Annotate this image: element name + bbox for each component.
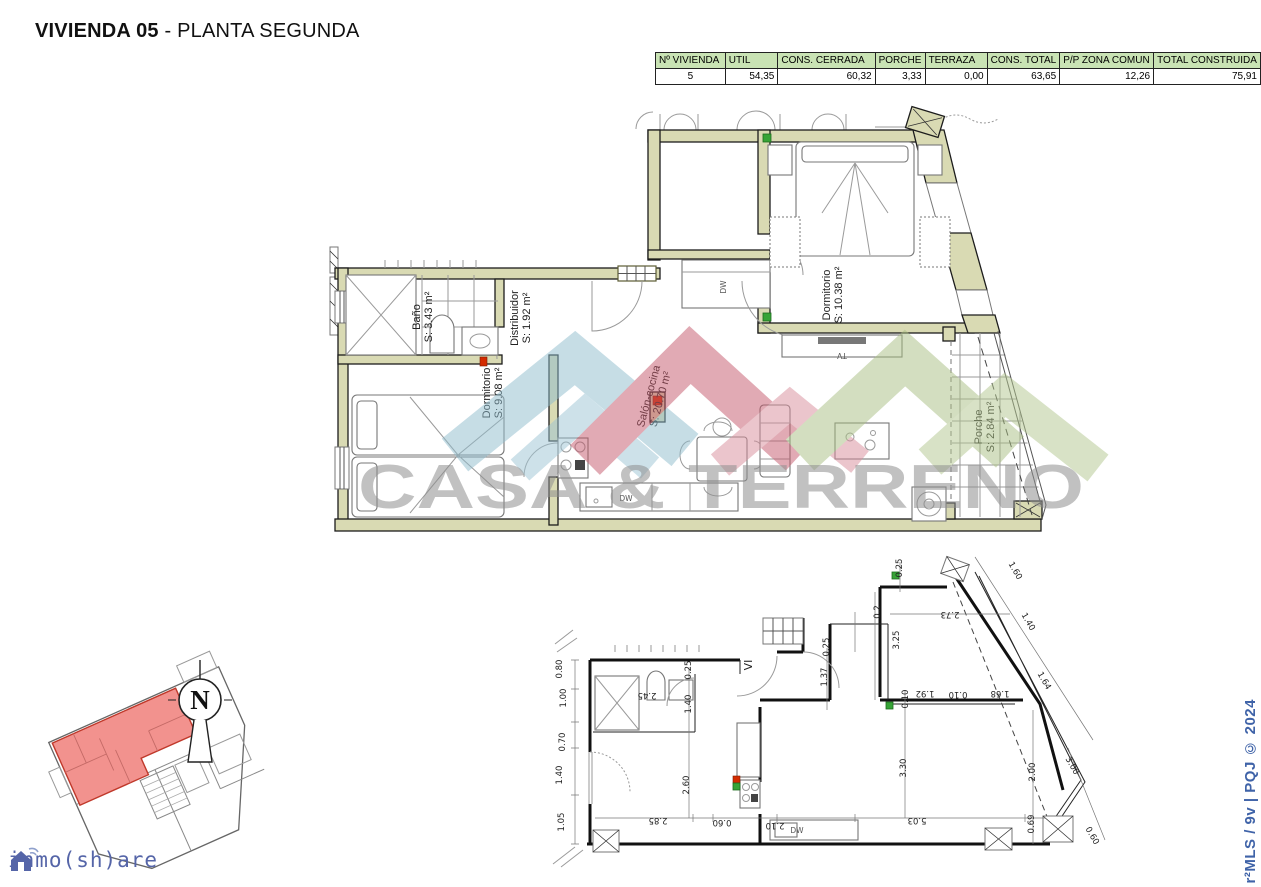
dimension-label: 1.40	[684, 695, 694, 714]
dimension-label: 0.60	[713, 817, 732, 827]
appliance-label-tv: TV	[836, 351, 848, 360]
room-label-porche: PorcheS: 2.84 m²	[973, 401, 997, 452]
cell-value: 75,91	[1154, 69, 1261, 85]
dimension-label: 2.00	[1028, 763, 1038, 782]
cell-value: 12,26	[1060, 69, 1154, 85]
page-title: VIVIENDA 05 - PLANTA SEGUNDA	[35, 20, 360, 43]
dimension-label: 2.85	[649, 815, 668, 825]
cell-value: 5	[656, 69, 726, 85]
page-title-rest: - PLANTA SEGUNDA	[159, 20, 360, 42]
cell-value: 54,35	[725, 69, 778, 85]
cell-value: 3,33	[875, 69, 925, 85]
dimension-label: 0.60	[1083, 825, 1101, 846]
table-header-row: Nº VIVIENDA UTIL CONS. CERRADA PORCHE TE…	[656, 53, 1261, 69]
floorplan-sheet: VIVIENDA 05 - PLANTA SEGUNDA Nº VIVIENDA…	[0, 0, 1261, 887]
fixtures	[595, 572, 899, 840]
col-header: UTIL	[725, 53, 778, 69]
dimension-label: 0.2	[873, 605, 883, 619]
room-label-dormitorio2: DormitorioS: 10.38 m²	[821, 266, 845, 323]
dimension-label: 3.30	[899, 759, 909, 778]
north-label: N	[190, 685, 210, 715]
dimension-label: 1.60	[1006, 560, 1024, 581]
walls-black	[587, 564, 1063, 844]
col-header: CONS. TOTAL	[987, 53, 1060, 69]
col-header: P/P ZONA COMUN	[1060, 53, 1154, 69]
sofa	[760, 405, 790, 477]
meter-grid-box	[618, 266, 656, 281]
col-header: TERRAZA	[925, 53, 987, 69]
dimension-label: 2.60	[682, 776, 692, 795]
dimension-label: 2.45	[638, 690, 657, 700]
dimension-label: 1.05	[557, 813, 567, 832]
col-header: PORCHE	[875, 53, 925, 69]
copyright-vertical-text: r²MLS / 9v | PQJ © 2024	[1242, 699, 1259, 883]
porche-outline	[953, 572, 1085, 834]
porche-area	[951, 331, 1046, 519]
marker-red	[480, 357, 487, 366]
meter-grid-box	[763, 618, 803, 644]
dimension-label: 0.25	[895, 559, 905, 578]
appliance-label-dw: DW	[619, 494, 633, 503]
dimension-label: 0.10	[949, 689, 968, 699]
room-label-dormitorio1: DormitorioS: 9.08 m²	[481, 367, 505, 418]
wall-ticks	[385, 260, 476, 268]
room-label-distribuidor: DistribuidorS: 1.92 m²	[509, 290, 533, 346]
dimension-label: 1.92	[916, 688, 935, 698]
table-value-row: 5 54,35 60,32 3,33 0,00 63,65 12,26 75,9…	[656, 69, 1261, 85]
kitchen-island	[835, 423, 889, 459]
dimension-label: 1.00	[559, 689, 569, 708]
surface-summary-table: Nº VIVIENDA UTIL CONS. CERRADA PORCHE TE…	[655, 52, 1261, 85]
dimension-label: 2.10	[766, 820, 785, 830]
dimension-label: 0.25	[684, 661, 694, 680]
site-key-plan: N	[58, 658, 273, 865]
shaft-label-vi: VI	[742, 660, 755, 671]
dimension-label: 0.25	[822, 638, 832, 657]
dimension-label: 0.69	[1027, 815, 1037, 834]
house-icon	[8, 847, 38, 873]
appliance-label-dw: DW	[719, 280, 728, 294]
dimension-label: 1.68	[991, 688, 1010, 698]
dimension-label: 0.10	[901, 690, 911, 709]
room-label-salon: Salón-cocinaS: 20.70 m²	[635, 363, 675, 431]
bed-main	[768, 142, 950, 267]
cell-value: 63,65	[987, 69, 1060, 85]
dimension-label: 0.80	[555, 660, 565, 679]
appliance-label-dw: DW	[790, 826, 804, 835]
page-title-bold: VIVIENDA 05	[35, 20, 159, 42]
dimensioned-plan: 0.80 1.00 0.70 1.40 1.05 2.45 0.25 1.40 …	[545, 552, 1135, 867]
dimension-label: 1.37	[820, 668, 830, 687]
cell-value: 0,00	[925, 69, 987, 85]
marker-green	[763, 134, 771, 142]
agency-logo: inmo(sh)are	[8, 848, 158, 872]
cell-value: 60,32	[778, 69, 875, 85]
col-header: CONS. CERRADA	[778, 53, 875, 69]
col-header: TOTAL CONSTRUIDA	[1154, 53, 1261, 69]
marker-green	[763, 313, 771, 321]
dimension-label: 5.03	[908, 815, 927, 825]
stove-hood	[912, 487, 946, 521]
dimension-label: 2.73	[941, 609, 960, 619]
col-header: Nº VIVIENDA	[656, 53, 726, 69]
main-floor-plan: BañoS: 3.43 m² DistribuidorS: 1.92 m² Do…	[330, 105, 1050, 550]
dimension-label: 0.70	[558, 733, 568, 752]
dimension-label: 1.40	[555, 766, 565, 785]
dimension-label: 3.25	[892, 631, 902, 650]
